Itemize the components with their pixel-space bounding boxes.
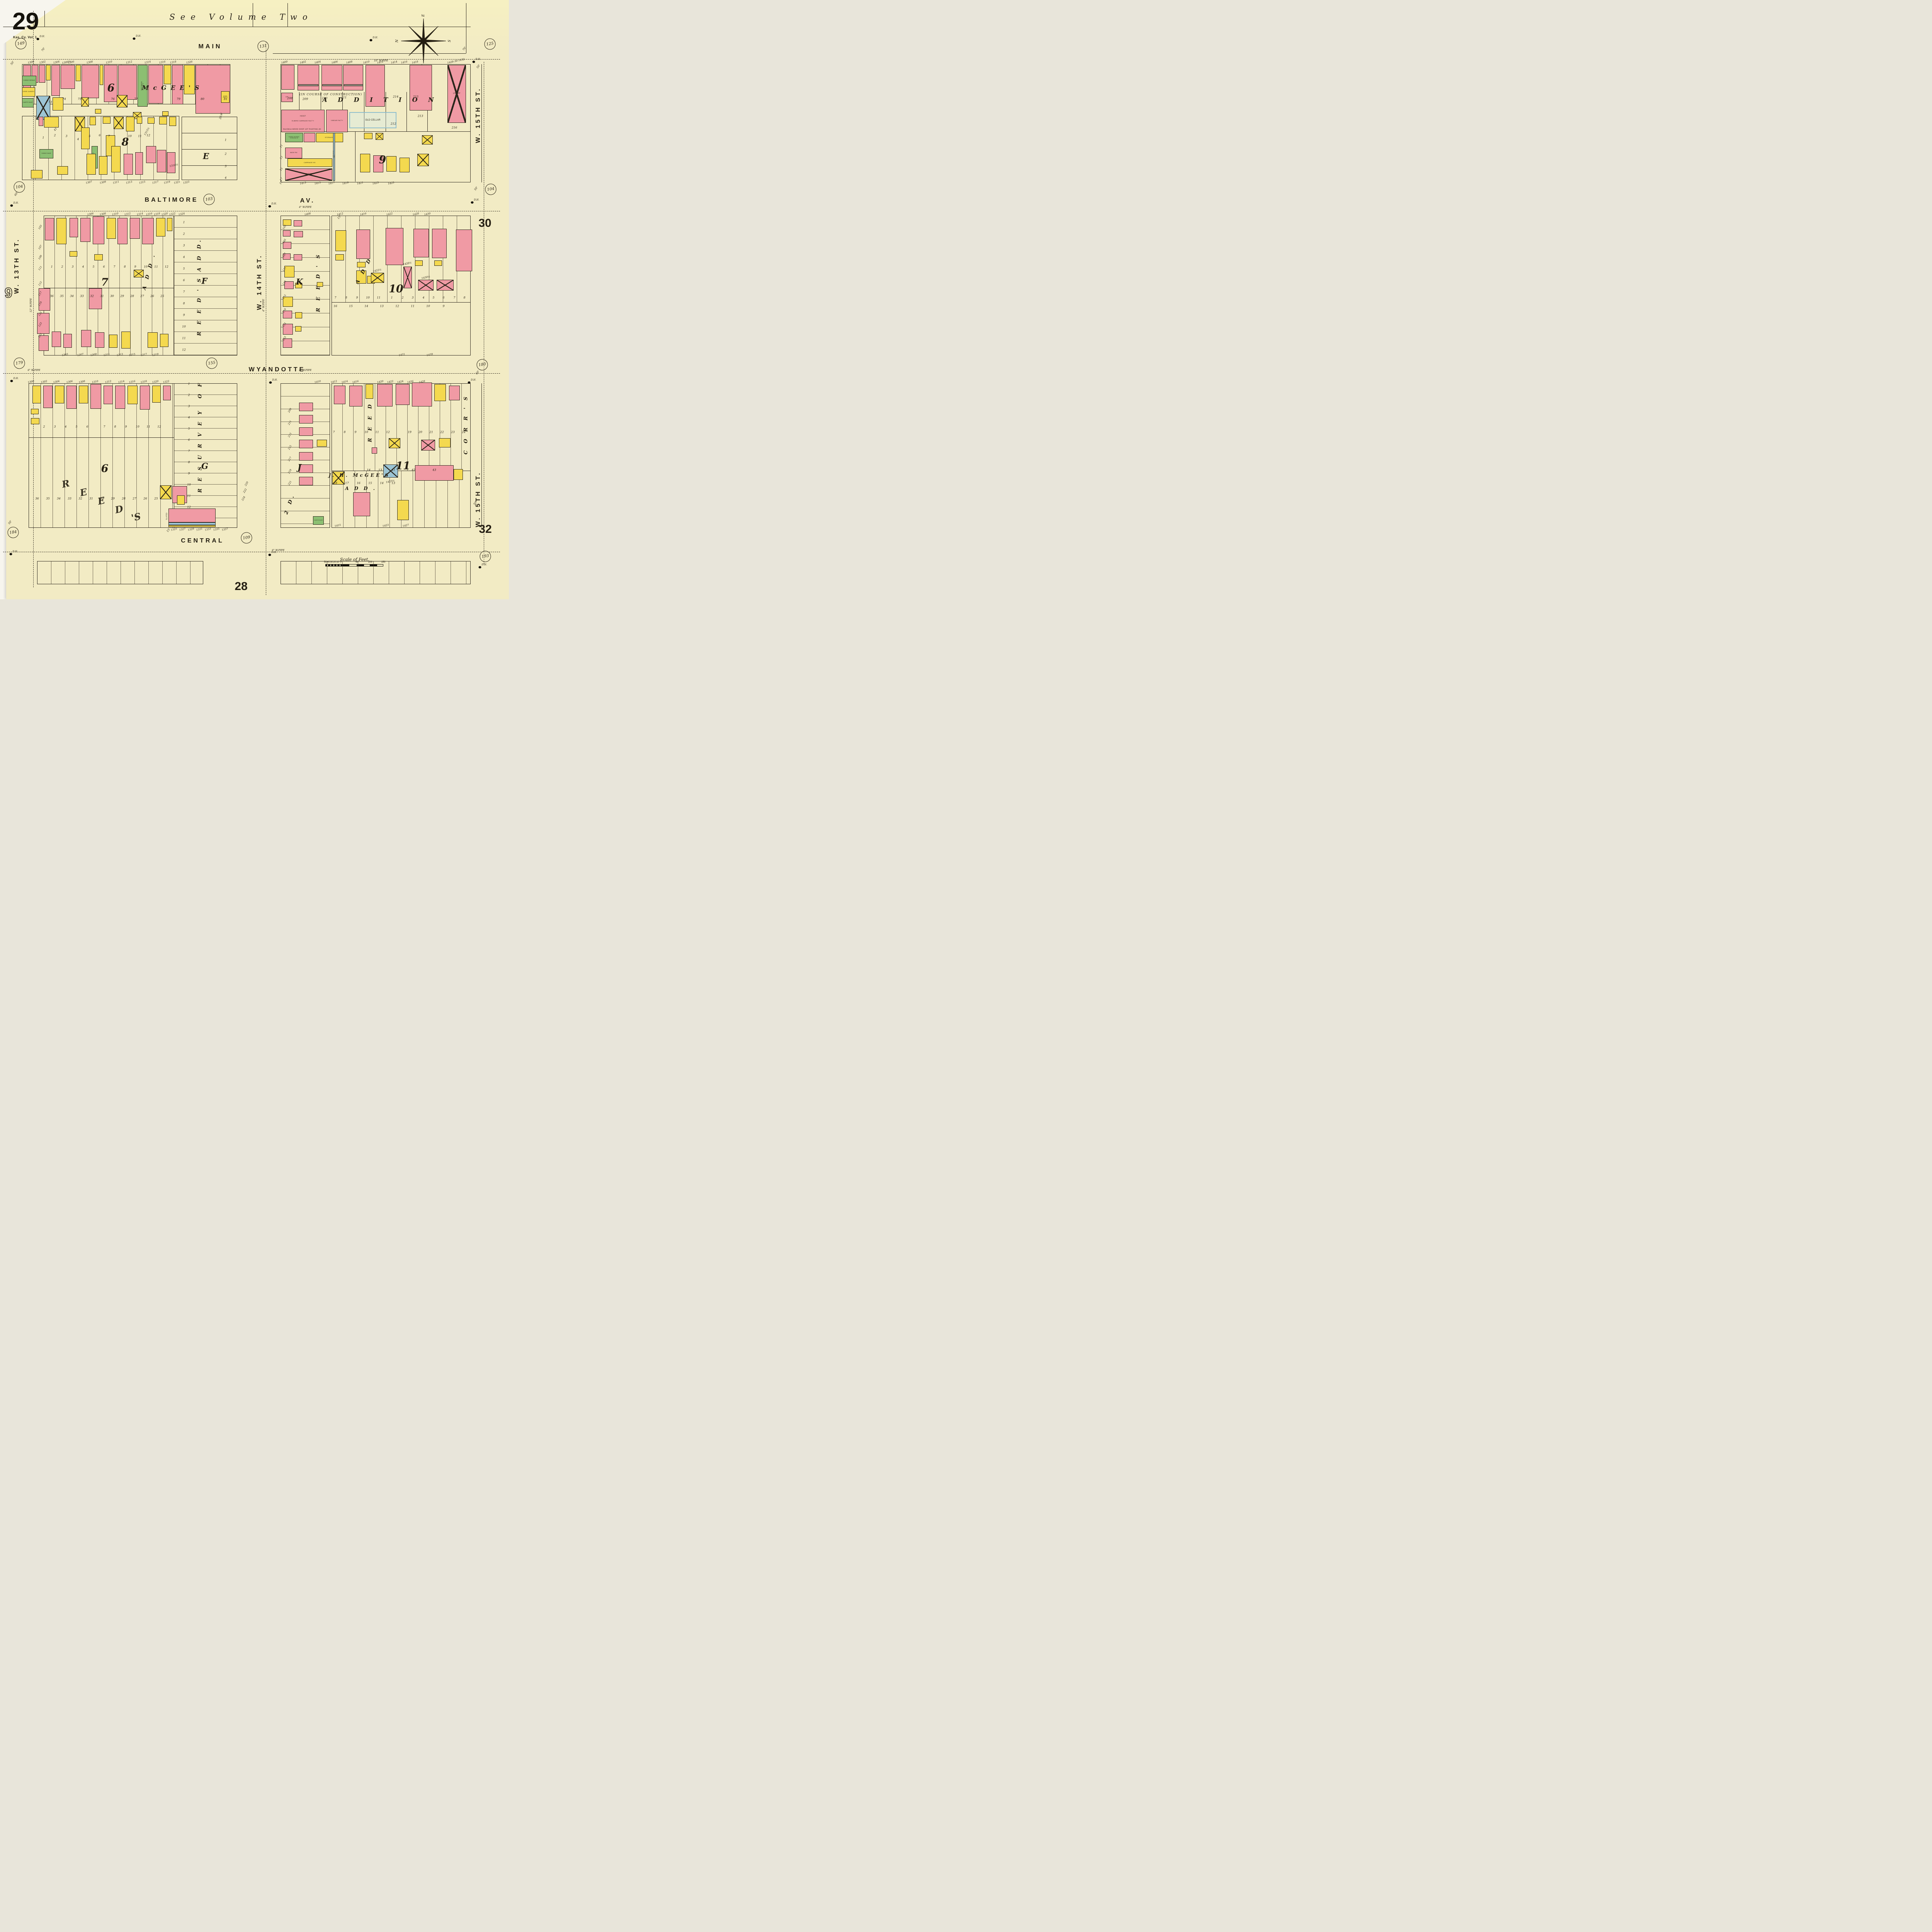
building: [397, 500, 409, 520]
map-label: 6" W.PIPE: [272, 549, 285, 552]
map-label: 1315: [129, 352, 136, 357]
map-label: 17: [345, 481, 349, 485]
map-label: 5: [188, 427, 190, 430]
map-label: 107: [37, 245, 43, 250]
map-label: 5: [89, 134, 91, 138]
building: WASH R'M: [285, 148, 302, 158]
map-label: 1311: [112, 180, 119, 184]
hydrant-dot: D.H.: [10, 553, 12, 555]
building: OLD CELLAR: [349, 112, 396, 128]
street-dash: [3, 552, 500, 552]
map-label: 10: [136, 425, 139, 429]
hydrant-label: D.H.: [272, 202, 277, 205]
building: [410, 65, 432, 111]
map-label: 9: [356, 296, 358, 299]
building: [168, 522, 216, 525]
building: [454, 469, 463, 480]
map-label: 1425: [388, 181, 395, 185]
map-label: R E S U R V E Y: [197, 408, 203, 493]
map-label: 1333: [204, 527, 211, 531]
building: [364, 133, 372, 139]
map-label: 9: [188, 472, 190, 475]
hydrant-dot: D.H.: [473, 61, 475, 63]
map-label: F: [202, 276, 207, 286]
map-label: 7: [114, 265, 116, 269]
map-label: 27: [133, 497, 136, 500]
map-label: 14: [364, 304, 368, 308]
map-label: 1410: [363, 60, 370, 64]
street-label-w13th: W. 13TH ST.: [14, 238, 20, 294]
map-label: 1337: [221, 527, 228, 531]
building: [295, 312, 302, 318]
map-label: 211: [341, 96, 347, 99]
adjacent-page-32: 32: [479, 523, 492, 536]
building: [90, 117, 96, 125]
building: [299, 440, 313, 448]
map-label: 1311: [103, 352, 110, 357]
building: [114, 117, 124, 129]
map-label: 7: [101, 277, 109, 289]
map-label: 36: [35, 497, 39, 500]
map-label: 16: [357, 481, 361, 485]
building: [294, 254, 302, 260]
building: [434, 384, 446, 401]
map-label: 2: [61, 265, 63, 269]
map-label: 10: [187, 483, 191, 486]
map-label: 36: [50, 294, 54, 298]
ref-circle: 179: [13, 357, 26, 370]
map-label: 50': [8, 520, 13, 525]
map-label: 13: [378, 468, 382, 472]
map-label: 30: [110, 294, 114, 298]
map-label: 79: [177, 97, 180, 101]
map-label: 77: [134, 97, 138, 101]
map-label: 4: [82, 265, 84, 269]
map-label: 22: [440, 430, 444, 434]
building: RETAINING WALL: [333, 133, 335, 181]
hydrant-dot: D.H.: [269, 205, 271, 207]
adjacent-page-30: 30: [478, 217, 491, 230]
building: [32, 386, 41, 403]
map-label: 9: [5, 285, 12, 301]
map-label: 1317: [140, 352, 147, 357]
map-label: 1316: [159, 60, 166, 64]
map-label: 210: [322, 97, 327, 100]
map-label: 11: [396, 460, 410, 472]
map-label: 6: [188, 438, 190, 442]
building: [349, 386, 362, 406]
building: [115, 386, 125, 409]
map-label: 12: [165, 265, 168, 269]
map-label: 8: [464, 296, 466, 299]
building: [389, 438, 400, 448]
building: [371, 273, 384, 283]
map-label: 11: [154, 265, 158, 269]
map-label: 10: [389, 283, 403, 295]
building: [335, 230, 346, 251]
map-label: SLATED: [166, 513, 168, 520]
map-label: 1408: [346, 60, 353, 64]
building: [121, 332, 131, 349]
street-label-central: CENTRAL: [181, 537, 224, 544]
map-label: 7: [104, 425, 105, 429]
map-label: 1307: [77, 352, 84, 357]
block-outline: [281, 561, 471, 584]
street-dash: [33, 11, 34, 587]
map-label: 4" W.PIPE: [262, 299, 265, 312]
building: [107, 218, 116, 239]
block-outline: [182, 117, 237, 180]
map-label: 103: [37, 224, 43, 230]
building: [299, 452, 313, 461]
map-label: 2: [188, 393, 190, 397]
building: HORSE SHOEING STORAGE 2D: [285, 133, 303, 142]
map-label: 1323: [183, 180, 190, 184]
building: CARP'R SHOP: [22, 98, 34, 107]
map-label: 1317: [152, 180, 159, 184]
map-label: 5: [93, 265, 95, 269]
building: [167, 152, 175, 173]
ref-circle: 155: [206, 357, 218, 370]
building: [177, 495, 185, 505]
hydrant-label: D.H.: [482, 563, 487, 566]
building: [299, 427, 313, 436]
building: [117, 95, 128, 107]
map-label: 1308: [86, 60, 93, 64]
map-label: 32: [78, 497, 82, 500]
map-label: 1313: [126, 180, 133, 184]
ref-circle: 109: [240, 532, 253, 544]
map-label: HOIST: [300, 115, 306, 117]
map-line: [466, 3, 466, 53]
map-label: 75: [78, 97, 82, 101]
building: [169, 117, 176, 126]
map-label: 34: [57, 497, 61, 500]
map-label: 14: [380, 481, 384, 485]
building: [168, 525, 216, 527]
map-label: 1419: [342, 181, 349, 185]
map-label: 42: [412, 468, 415, 472]
hydrant-dot: D.H.: [10, 204, 13, 207]
map-label: 1404: [314, 60, 321, 64]
map-label: 29: [120, 294, 124, 298]
hydrant-dot: D.H.: [269, 381, 272, 384]
building: [421, 440, 435, 451]
building: [415, 465, 454, 481]
building: [134, 270, 144, 277]
building-label: HORSE SHOEING STORAGE 2D: [286, 136, 302, 139]
map-label: 23: [451, 430, 455, 434]
street-dash: [266, 42, 266, 595]
map-label: 50': [476, 64, 481, 69]
building: [137, 117, 142, 124]
map-label: 50': [10, 60, 15, 65]
map-label: 8: [122, 136, 129, 148]
map-label: 2: [54, 134, 56, 137]
map-label: 2: [225, 152, 227, 156]
map-label: 1321: [173, 180, 180, 184]
compass-n: N: [395, 39, 399, 43]
building: [80, 218, 90, 242]
map-label: 11: [146, 425, 150, 429]
hydrant-dot: D.H.: [269, 554, 271, 556]
ref-circle: 125: [484, 38, 497, 51]
building: [360, 154, 370, 172]
building: [299, 477, 313, 485]
building: [168, 509, 216, 522]
building: [95, 109, 101, 114]
map-label: 18: [333, 481, 337, 485]
map-label: 215: [413, 95, 418, 99]
building-label: FURN'E REPAIR: [24, 80, 35, 82]
map-label: 35: [46, 497, 50, 500]
building: [343, 65, 363, 90]
building: [95, 332, 104, 348]
street-dash: [3, 211, 500, 211]
building: [135, 152, 143, 175]
hydrant-label: D.H.: [14, 377, 19, 380]
map-label: 16: [333, 304, 337, 308]
map-label: 31: [100, 294, 104, 298]
building: [31, 418, 39, 424]
map-label: 9: [443, 304, 445, 308]
map-label: 1413: [299, 181, 306, 185]
building: [152, 386, 161, 403]
map-label: 1423: [372, 181, 379, 185]
map-label: 26: [143, 497, 147, 500]
map-label: 3: [66, 134, 68, 138]
hydrant-label: D.H.: [474, 199, 480, 201]
map-label: 1429: [426, 352, 433, 357]
building: [162, 111, 168, 116]
street-label-w15th-upper: W. 15TH ST.: [475, 87, 482, 143]
hydrant-label: D.H.: [373, 36, 378, 39]
hydrant-label: D.H.: [476, 58, 481, 61]
map-label: 4" W.PIPE: [299, 206, 312, 209]
map-label: 1421: [398, 352, 405, 357]
building: [415, 260, 423, 266]
building: [321, 65, 342, 90]
map-label: 109: [37, 255, 43, 260]
map-label: 1314: [144, 60, 151, 64]
building: [317, 440, 327, 447]
hydrant-dot: D.H.: [37, 38, 39, 40]
building: [376, 133, 383, 140]
map-label: 4: [225, 176, 227, 180]
map-label: 25: [154, 497, 158, 500]
building: [335, 254, 344, 260]
hydrant-dot: D.H.: [133, 37, 136, 40]
building: [89, 288, 102, 309]
building-label: CHINE LAUNDRY: [23, 91, 34, 93]
map-label: 3: [183, 244, 185, 247]
map-line: [287, 3, 288, 27]
map-label: 5: [433, 296, 435, 299]
building: [130, 218, 140, 239]
scanned-map-page: 29 Kas. Cy. Vol. 1. See Volume Two MAIN …: [0, 0, 509, 599]
building: [124, 154, 133, 175]
map-label: 1326: [186, 60, 193, 64]
map-label: R E E D ' S: [316, 252, 321, 312]
map-label: 6: [87, 425, 88, 429]
building: [413, 229, 429, 257]
map-label: 15: [368, 481, 372, 485]
map-label: 1414: [391, 60, 398, 64]
hydrant-label: D.H.: [14, 202, 19, 204]
volume-note: Kas. Cy. Vol. 1.: [13, 36, 38, 39]
page-number: 29: [12, 11, 39, 32]
map-label: 220: [244, 481, 249, 487]
building: CHINE LAUNDRY: [22, 87, 35, 97]
compass-e: E: [422, 14, 425, 17]
map-label: 81: [224, 97, 228, 101]
building: LIVERY: [447, 65, 466, 123]
map-label: 1302: [39, 60, 46, 64]
map-label: 3: [412, 296, 414, 299]
map-label: 1: [43, 136, 44, 139]
map-label: 9: [183, 313, 185, 317]
map-label: 24: [462, 430, 466, 434]
map-label: 20: [418, 430, 422, 434]
building: [81, 330, 91, 347]
map-label: 2: [183, 232, 185, 236]
map-label: 8: [345, 296, 347, 299]
street-label-main: MAIN: [199, 43, 222, 50]
building: CARP'R SHOP: [313, 516, 324, 525]
ref-circle: 131: [257, 40, 270, 53]
building: [299, 415, 313, 423]
building-label: CARP'R SHOP: [314, 520, 323, 521]
map-label: 1406: [331, 60, 338, 64]
hydrant-label: D.H.: [136, 35, 141, 37]
map-label: 5: [183, 267, 185, 270]
street-label-baltimore: BALTIMORE: [145, 197, 199, 204]
map-label: 73: [48, 100, 52, 104]
building: [109, 335, 117, 348]
building: [111, 146, 121, 172]
building: [126, 117, 134, 131]
building: [294, 220, 302, 226]
building: LIVERY: [285, 168, 332, 181]
map-label: 31: [89, 497, 93, 500]
building: [353, 492, 370, 516]
map-label: 1319: [152, 352, 159, 357]
map-label: 7: [335, 296, 337, 299]
map-label: R E E D: [367, 402, 373, 442]
ref-circle: 180: [476, 359, 489, 371]
building: [400, 158, 410, 172]
map-label: 9: [134, 265, 136, 269]
hydrant-label: D.H.: [13, 550, 18, 553]
building: [432, 229, 447, 258]
building: [70, 251, 77, 257]
building: [117, 218, 128, 244]
ref-circle: 184: [7, 526, 20, 539]
building: [103, 117, 111, 124]
hydrant-dot: D.H.: [468, 381, 471, 384]
map-label: 1: [183, 221, 185, 224]
map-label: 1331: [196, 527, 203, 531]
map-label: 216: [452, 126, 457, 129]
map-label: 1309: [99, 180, 106, 184]
map-line: [273, 53, 466, 54]
map-line: [481, 64, 482, 182]
map-label: 111: [37, 265, 43, 271]
building: [283, 230, 291, 236]
building: [61, 65, 75, 89]
map-label: R E E D ' S A D D.: [197, 238, 202, 336]
building: [418, 280, 434, 291]
map-label: 6" W.PIPE: [28, 369, 41, 372]
building: FURN'E REPAIR: [22, 76, 36, 86]
map-label: 29: [111, 497, 115, 500]
building: [437, 280, 454, 291]
building: [439, 438, 451, 447]
map-label: 43: [432, 468, 436, 472]
building: [281, 65, 294, 90]
building: [90, 384, 101, 409]
map-label: 1: [225, 138, 227, 142]
map-label: 1417: [328, 181, 335, 185]
building: [164, 65, 171, 84]
hydrant-dot: D.H.: [10, 380, 13, 382]
building: [39, 117, 43, 126]
street-label-w15th-lower: W. 15TH ST.: [475, 471, 482, 527]
ref-circle: 104: [13, 181, 26, 194]
building: [99, 156, 107, 175]
map-label: 4: [183, 255, 185, 259]
building: [146, 146, 156, 163]
building: [93, 216, 104, 244]
building: [366, 384, 373, 399]
building: [142, 218, 154, 244]
map-label: 2: [402, 296, 404, 299]
building: [156, 218, 165, 236]
building: [87, 154, 96, 175]
building: [148, 332, 158, 348]
building: [56, 218, 66, 244]
map-label: 41: [391, 468, 395, 472]
building-label: LIVERY: [305, 173, 313, 175]
map-label: 213: [418, 114, 423, 118]
map-label: 10: [364, 430, 368, 434]
map-label: 8: [188, 461, 190, 464]
building: [160, 334, 168, 347]
building: [157, 150, 166, 172]
hydrant-label: D.H.: [471, 379, 476, 381]
map-label: C O R R ' S: [463, 394, 469, 454]
map-label: 33: [68, 497, 71, 500]
building: [128, 386, 138, 404]
map-label: 1319: [163, 180, 170, 184]
map-label: 12: [187, 505, 191, 509]
building: FURN'E SHOP: [39, 149, 53, 158]
building: [31, 170, 43, 179]
street-dash: [3, 59, 500, 60]
map-label: 8: [344, 430, 346, 434]
map-label: 1402: [299, 60, 306, 64]
map-label: 1327: [179, 527, 186, 531]
map-label: 11: [182, 337, 186, 340]
building: [456, 230, 472, 271]
map-label: 1303: [61, 352, 68, 357]
building: [295, 326, 301, 332]
hydrant-dot: D.H.: [370, 39, 372, 41]
building: [294, 231, 303, 237]
map-label: 1: [51, 265, 53, 269]
building: [386, 156, 396, 172]
map-label: 1313: [116, 352, 123, 357]
